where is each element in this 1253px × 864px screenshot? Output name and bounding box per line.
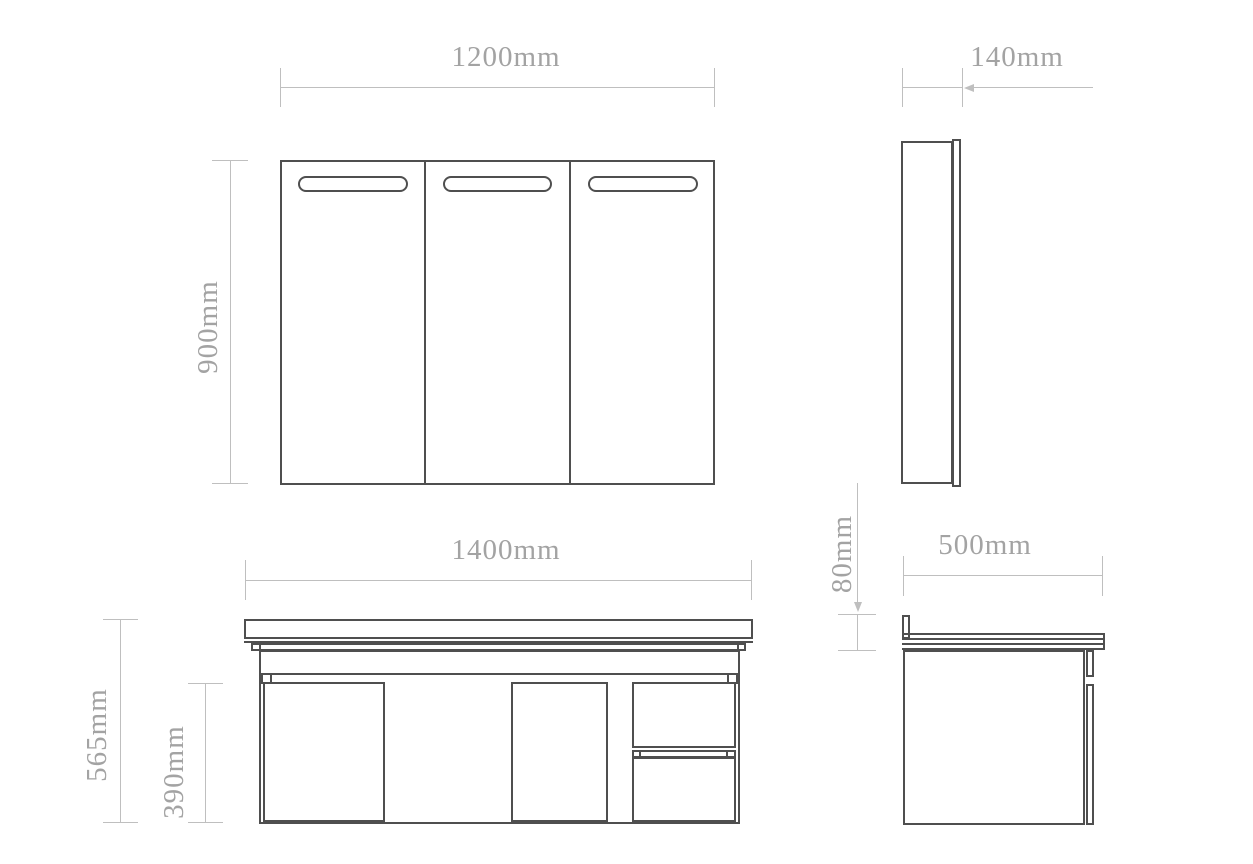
dim-tick bbox=[188, 822, 223, 823]
dim-tick bbox=[188, 683, 223, 684]
drawing-canvas: 1200mm 900mm 140mm 80mm 500mm bbox=[0, 0, 1253, 864]
dim-line bbox=[205, 683, 206, 823]
dim-label-vanity-cabinet-height: 390mm bbox=[159, 697, 187, 847]
dimension-vanity-cabinet-height: 390mm bbox=[0, 0, 1253, 864]
